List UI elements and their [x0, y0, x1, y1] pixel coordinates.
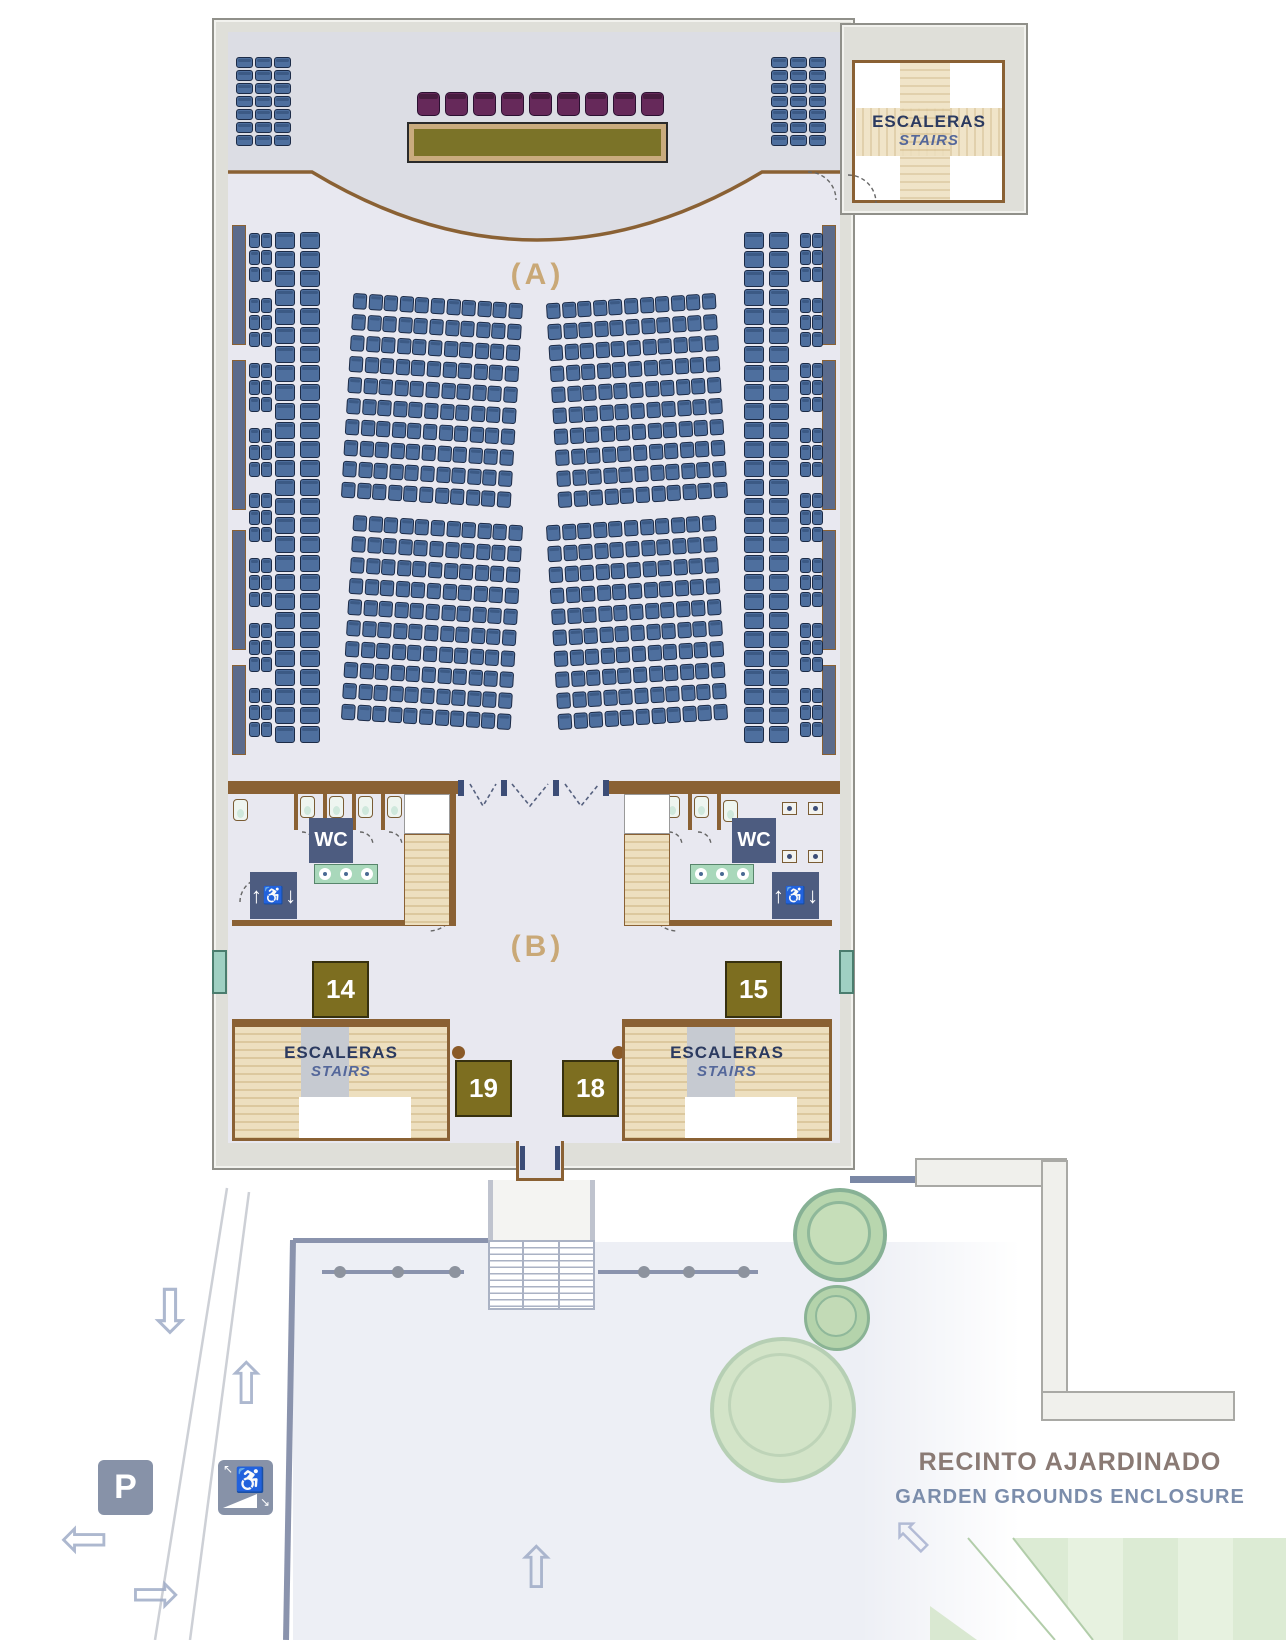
garden-title-es: RECINTO AJARDINADO	[890, 1448, 1250, 1477]
seat-block-right-wall-pairs	[800, 428, 823, 477]
door-jamb-1	[458, 780, 464, 796]
parking-icon: P	[98, 1460, 153, 1515]
entrance-door-jamb-left	[520, 1146, 525, 1170]
toilet-icon	[300, 796, 315, 818]
elevator-left-badge: ↑♿↓	[250, 872, 297, 919]
urinal-icon	[782, 802, 797, 815]
room-14-label: 14	[326, 974, 355, 1005]
seat-block-right-wall-pairs	[800, 688, 823, 737]
seat-block-right-wall-pairs	[800, 298, 823, 347]
room-18-badge: 18	[562, 1060, 619, 1117]
lift-down-icon: ↓	[807, 883, 818, 909]
room-15-label: 15	[739, 974, 768, 1005]
room-14-badge: 14	[312, 961, 369, 1018]
wheelchair-icon: ♿	[235, 1466, 265, 1495]
stair-room-left: ESCALERAS STAIRS	[232, 1024, 450, 1141]
room-19-badge: 19	[455, 1060, 512, 1117]
parking-label: P	[114, 1468, 137, 1507]
wc-left-stall-4	[381, 794, 385, 830]
wheelchair-icon: ♿	[263, 886, 284, 906]
seat-block-left-wall-pairs	[249, 558, 272, 607]
accessible-ramp-icon: ↖ ♿ ↘	[218, 1460, 273, 1515]
wc-left-stall-1	[294, 794, 298, 830]
hall-wall-left	[228, 781, 458, 794]
seat-block-left-wall-pairs	[249, 493, 272, 542]
room-19-label: 19	[469, 1073, 498, 1104]
floor-plan: ESCALERAS STAIRS	[0, 0, 1286, 1640]
wc-left-badge: WC	[309, 818, 353, 863]
seat-block-left-wall-pairs	[249, 428, 272, 477]
wheelchair-icon: ♿	[785, 886, 806, 906]
ramp-in-icon: ↖	[223, 1462, 233, 1476]
stair-room-right-label-en: STAIRS	[625, 1063, 829, 1080]
ramp-out-icon: ↘	[260, 1495, 270, 1509]
toilet-icon	[387, 796, 402, 818]
column-dot-left	[452, 1046, 465, 1059]
side-window-left	[212, 950, 227, 994]
seat-block-left-wall-pairs	[249, 298, 272, 347]
stair-room-left-landing	[299, 1097, 411, 1138]
plaza-arrow-up-icon: ⇧	[512, 1540, 561, 1598]
toilet-icon	[233, 799, 248, 821]
wc-right-label: WC	[737, 829, 770, 852]
lift-down-icon: ↓	[285, 883, 296, 909]
lift-up-icon: ↑	[773, 883, 784, 909]
lobby-stair-left	[404, 834, 450, 926]
lobby-stair-left-landing	[404, 794, 450, 834]
stair-room-right-label-es: ESCALERAS	[625, 1043, 829, 1063]
seat-block-left-wall-pairs	[249, 233, 272, 282]
seat-block-right-col-a	[769, 232, 789, 743]
ramp-slope	[223, 1494, 257, 1508]
garden-title-en: GARDEN GROUNDS ENCLOSURE	[880, 1486, 1260, 1509]
wc-right-stall-2	[688, 794, 692, 830]
seat-block-left-wall-pairs	[249, 623, 272, 672]
seat-block-right-wall-pairs	[800, 558, 823, 607]
seat-block-stage-chairs	[417, 92, 664, 116]
seat-block-left-col-b	[300, 232, 320, 743]
urinal-icon	[808, 802, 823, 815]
arrow-left-icon: ⇦	[60, 1510, 109, 1568]
sink-counter-left	[314, 864, 378, 884]
lobby-stair-right	[624, 834, 670, 926]
door-jamb-4	[603, 780, 609, 796]
lobby-stair-right-landing	[624, 794, 670, 834]
seat-block-right-wall-pairs	[800, 233, 823, 282]
side-window-right	[839, 950, 854, 994]
urinal-icon	[782, 850, 797, 863]
arrow-down-icon: ⇩	[144, 1282, 196, 1344]
toilet-icon	[694, 796, 709, 818]
hall-wall-right	[609, 781, 840, 794]
seat-block-corner-left	[236, 57, 291, 146]
seat-block-left-wall-pairs	[249, 688, 272, 737]
wc-right-stall-3	[717, 794, 721, 830]
arrow-up-icon: ⇧	[222, 1356, 271, 1414]
wc-left-wall-right	[450, 794, 456, 926]
arrow-right-icon: ⇨	[132, 1565, 181, 1623]
stair-room-right-landing	[685, 1097, 797, 1138]
seat-block-center-upper-right	[546, 293, 728, 508]
stair-room-left-label-en: STAIRS	[235, 1063, 447, 1080]
entrance-door-jamb-right	[555, 1146, 560, 1170]
stair-room-right: ESCALERAS STAIRS	[622, 1024, 832, 1141]
sink-counter-right	[690, 864, 754, 884]
stair-room-left-labels: ESCALERAS STAIRS	[235, 1043, 447, 1080]
seat-block-center-lower-left	[341, 515, 523, 730]
seat-block-left-col-a	[275, 232, 295, 743]
door-jamb-3	[553, 780, 559, 796]
seat-block-right-wall-pairs	[800, 623, 823, 672]
door-jamb-2	[501, 780, 507, 796]
lift-up-icon: ↑	[251, 883, 262, 909]
seat-block-left-wall-pairs	[249, 363, 272, 412]
toilet-icon	[329, 796, 344, 818]
zone-a-label: (A)	[480, 258, 595, 292]
wc-left-label: WC	[314, 829, 347, 852]
seat-block-right-wall-pairs	[800, 493, 823, 542]
wc-right-wall-bottom	[650, 920, 832, 926]
stair-room-left-label-es: ESCALERAS	[235, 1043, 447, 1063]
seat-block-right-col-b	[744, 232, 764, 743]
room-18-label: 18	[576, 1073, 605, 1104]
stair-room-right-labels: ESCALERAS STAIRS	[625, 1043, 829, 1080]
seat-block-center-lower-right	[546, 515, 728, 730]
toilet-icon	[358, 796, 373, 818]
seat-block-corner-right	[771, 57, 826, 146]
zone-b-label: (B)	[480, 930, 595, 964]
seat-block-right-wall-pairs	[800, 363, 823, 412]
wc-right-badge: WC	[732, 818, 776, 863]
seat-block-center-upper-left	[341, 293, 523, 508]
urinal-icon	[808, 850, 823, 863]
room-15-badge: 15	[725, 961, 782, 1018]
elevator-right-badge: ↑♿↓	[772, 872, 819, 919]
